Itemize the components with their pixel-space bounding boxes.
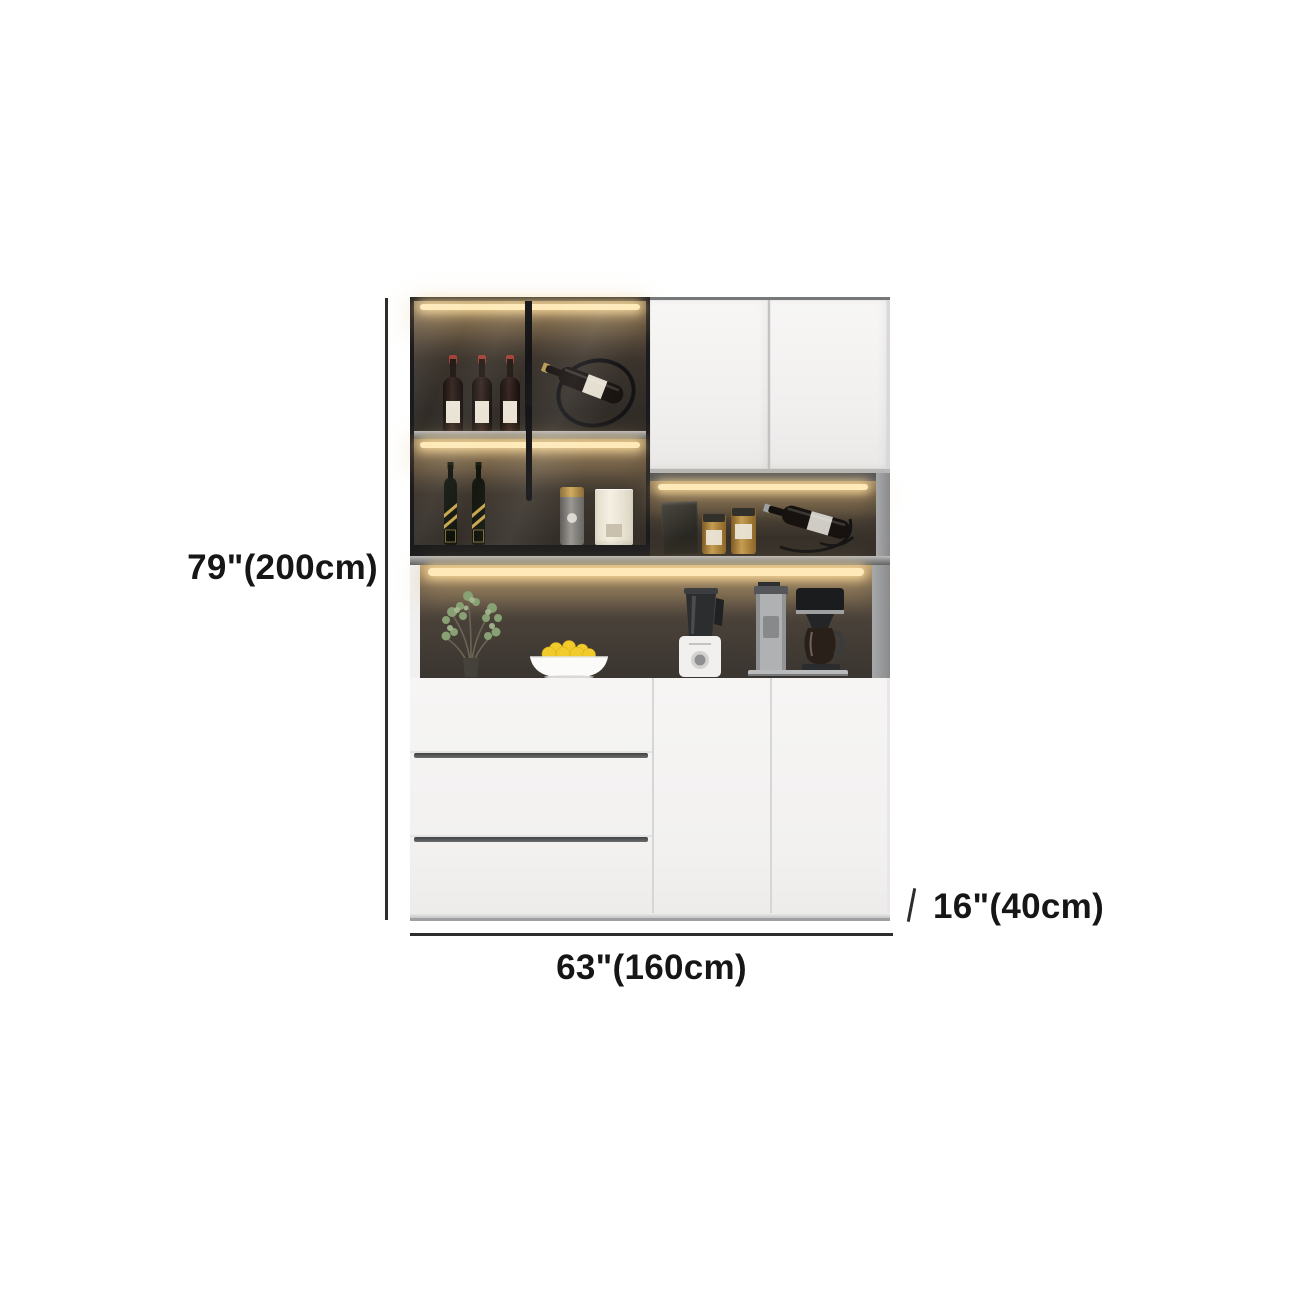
spice-jar — [702, 514, 726, 554]
width-dimension-label: 63"(160cm) — [410, 948, 893, 988]
counter-shelf-board — [410, 556, 890, 565]
height-dimension-line — [385, 298, 388, 920]
blender — [672, 588, 728, 678]
led-strip-open-shelf — [658, 484, 868, 490]
drawer-handle — [414, 753, 648, 758]
depth-dimension-tick — [907, 888, 916, 922]
wine-bottle — [472, 355, 492, 431]
wine-bottle — [443, 355, 463, 431]
gift-box — [661, 501, 699, 554]
open-shelf-top-band — [650, 473, 890, 481]
base-right-edge — [887, 678, 890, 921]
upper-cabinet-door-right — [770, 300, 887, 469]
led-strip-alcove — [428, 568, 864, 576]
lower-door-divider — [770, 678, 772, 921]
whisky-bottle — [468, 462, 489, 545]
product-dimension-image: 79"(200cm) 63"(160cm) 16"(40cm) — [0, 0, 1300, 1300]
alcove-left-wall — [410, 565, 420, 678]
storage-canister — [560, 487, 584, 545]
alcove-right-wall — [872, 565, 890, 678]
reclined-wine-bottle — [760, 497, 864, 554]
wine-bottle — [500, 355, 520, 431]
drawer-door-gap — [652, 678, 654, 921]
width-dimension-line — [410, 933, 893, 936]
depth-dimension-label: 16"(40cm) — [933, 887, 1104, 927]
upper-cabinet-door-left — [650, 300, 768, 469]
coffee-maker — [746, 582, 850, 678]
glass-door-handle — [526, 405, 532, 501]
whisky-bottle — [440, 462, 461, 545]
bowl-of-lemons — [526, 638, 612, 678]
upper-cabinet-right-edge — [887, 300, 890, 469]
spice-jar — [731, 508, 756, 554]
storage-tin — [595, 489, 633, 545]
cabinet-bottom-edge — [410, 918, 890, 921]
drawer-handle — [414, 837, 648, 842]
height-dimension-label: 79"(200cm) — [0, 548, 378, 588]
sideboard-cabinet — [410, 297, 890, 921]
base-cabinet — [410, 678, 890, 921]
potted-plant — [430, 580, 512, 678]
wine-rack-bottle — [536, 347, 646, 431]
open-shelf-side-wall — [876, 473, 890, 556]
